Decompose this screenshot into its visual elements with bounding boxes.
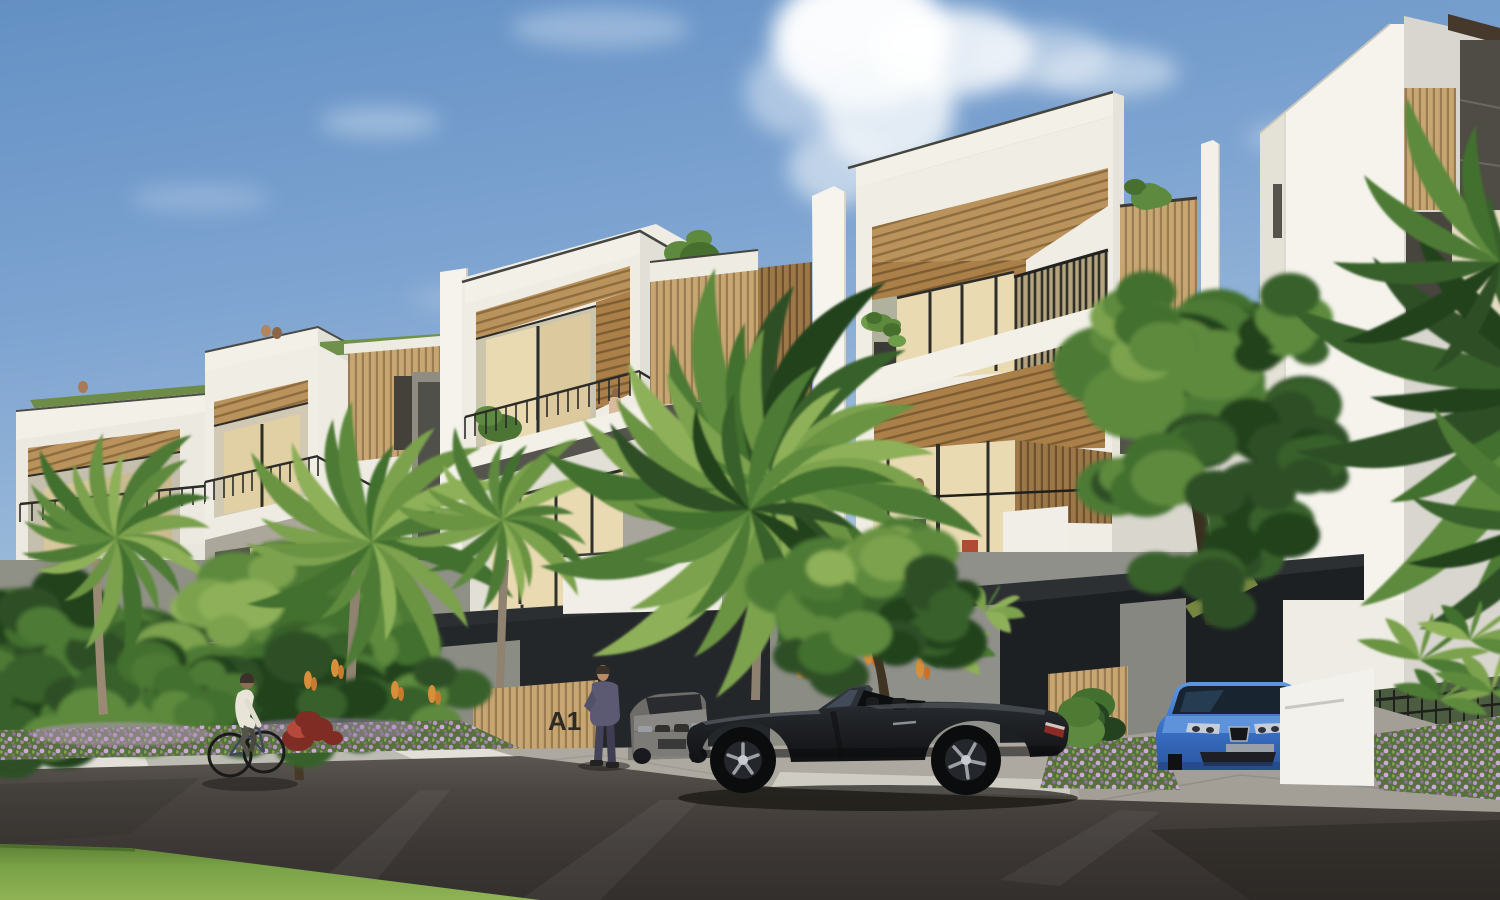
svg-text:A1: A1: [548, 706, 581, 736]
